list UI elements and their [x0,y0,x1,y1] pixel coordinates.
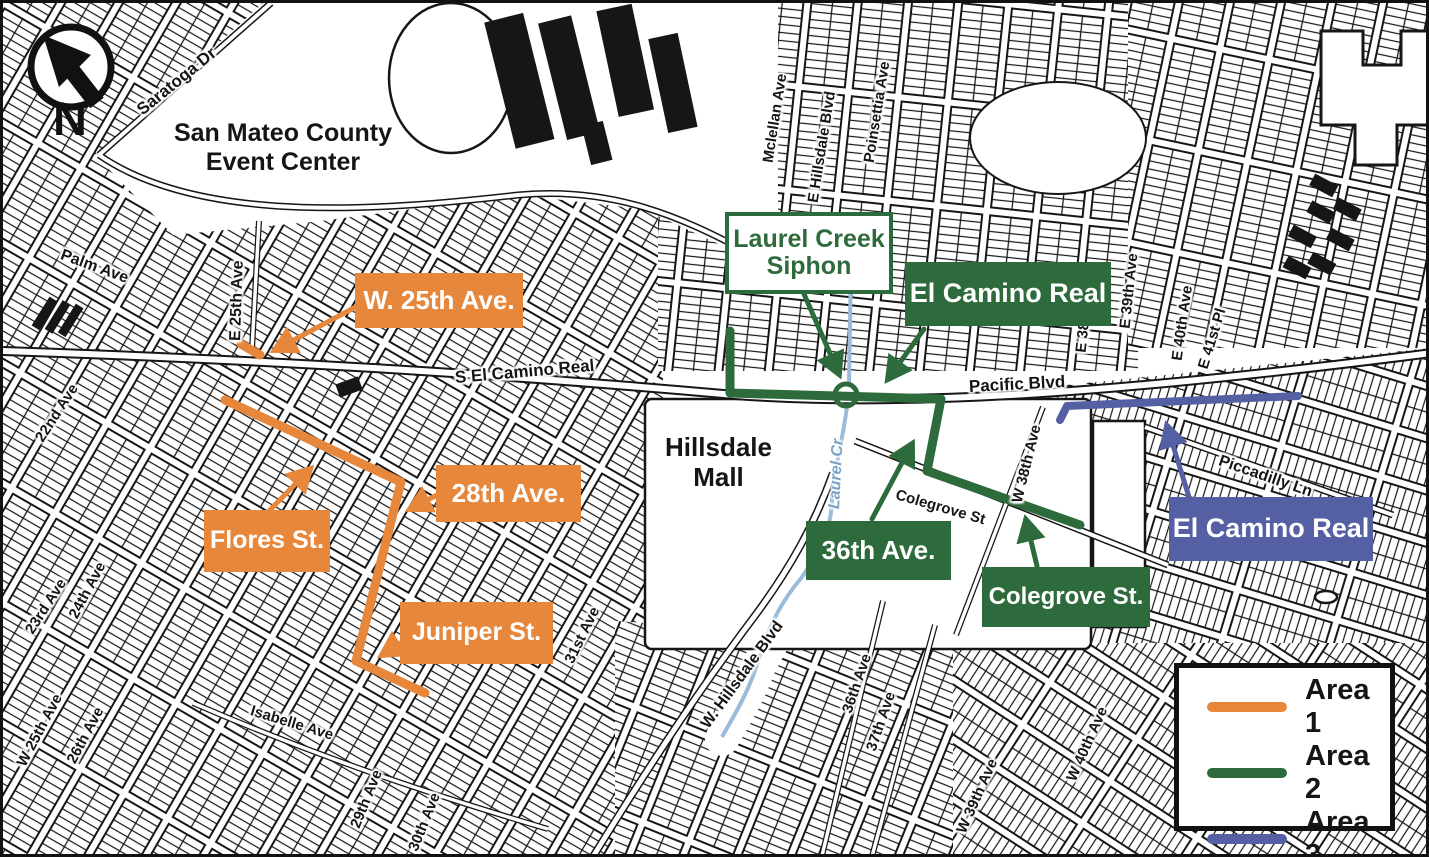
callout-juniper-text: Juniper St. [412,619,541,647]
event-center-line2: Event Center [153,148,413,177]
legend-label-area2: Area 2 [1305,740,1390,806]
street-label-pacific: Pacific Blvd [969,373,1066,395]
callout-36th-text: 36th Ave. [822,536,936,565]
callout-laurel-line1: Laurel Creek [733,226,884,254]
callout-w25th-text: W. 25th Ave. [363,286,514,315]
legend-swatch-area2 [1207,768,1287,778]
callout-w25th-ave: W. 25th Ave. [355,273,523,328]
event-center-label: San Mateo County Event Center [153,119,413,177]
callout-36th-ave: 36th Ave. [806,521,951,580]
legend-row-area2: Area 2 [1207,740,1390,806]
legend-label-area3: Area 3 [1305,806,1390,857]
map-stage: Saratoga Dr Palm Ave E 25th Ave 22nd Ave… [0,0,1429,857]
north-label: N [53,91,87,146]
callout-elcamino-blue-text: El Camino Real [1173,514,1370,544]
legend-swatch-area3 [1207,834,1287,844]
callout-el-camino-real-area3: El Camino Real [1169,497,1373,561]
callout-flores-st: Flores St. [204,510,330,572]
callout-laurel-creek-siphon: Laurel Creek Siphon [725,212,893,294]
callout-el-camino-real-area2: El Camino Real [905,262,1111,326]
callout-juniper-st: Juniper St. [400,602,553,664]
legend: Area 1 Area 2 Area 3 [1174,663,1395,831]
event-center-line1: San Mateo County [153,119,413,148]
map-detail-oval [1315,591,1337,603]
callout-colegrove-text: Colegrove St. [989,584,1144,610]
callout-28th-text: 28th Ave. [452,479,566,508]
callout-laurel-line2: Siphon [767,253,852,281]
hillsdale-mall-label: Hillsdale Mall [651,433,786,493]
mall-line1: Hillsdale [651,433,786,463]
legend-row-area3: Area 3 [1207,806,1390,857]
legend-swatch-area1 [1207,702,1287,712]
legend-row-area1: Area 1 [1207,674,1390,740]
mall-line2: Mall [651,463,786,493]
callout-flores-text: Flores St. [210,527,324,555]
callout-elcamino-green-text: El Camino Real [910,279,1107,309]
callout-colegrove-st: Colegrove St. [982,567,1150,627]
legend-label-area1: Area 1 [1305,674,1390,740]
street-label-e25th: E 25th Ave [228,260,247,341]
callout-28th-ave: 28th Ave. [436,465,581,522]
